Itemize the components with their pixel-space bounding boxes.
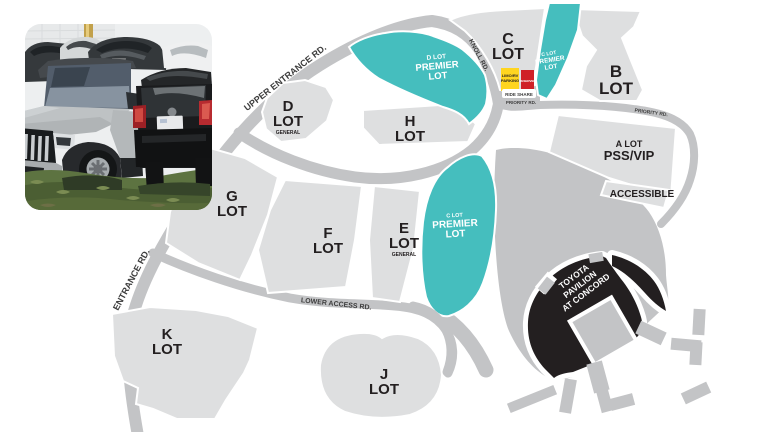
svg-text:LOT: LOT [389, 235, 419, 252]
svg-text:PRIORITY RD.: PRIORITY RD. [506, 100, 536, 105]
svg-text:LOT: LOT [428, 70, 448, 83]
svg-text:ACCESSIBLE: ACCESSIBLE [610, 189, 675, 200]
svg-text:RIDE SHARE: RIDE SHARE [505, 92, 533, 97]
svg-text:LOT: LOT [492, 46, 524, 63]
svg-text:LOT: LOT [445, 228, 466, 240]
svg-text:PSS/VIP: PSS/VIP [604, 148, 655, 163]
svg-text:RESERVED: RESERVED [519, 79, 536, 83]
svg-text:LOT: LOT [273, 113, 303, 130]
svg-text:LOT: LOT [369, 381, 399, 398]
svg-text:LOT: LOT [313, 240, 343, 257]
svg-text:LOT: LOT [599, 79, 634, 98]
svg-text:GENERAL: GENERAL [392, 252, 416, 258]
svg-text:PARKING: PARKING [501, 78, 519, 83]
svg-text:LOT: LOT [152, 341, 182, 358]
svg-text:LOT: LOT [395, 128, 425, 145]
svg-text:GENERAL: GENERAL [276, 130, 300, 136]
svg-text:LOT: LOT [217, 203, 247, 220]
